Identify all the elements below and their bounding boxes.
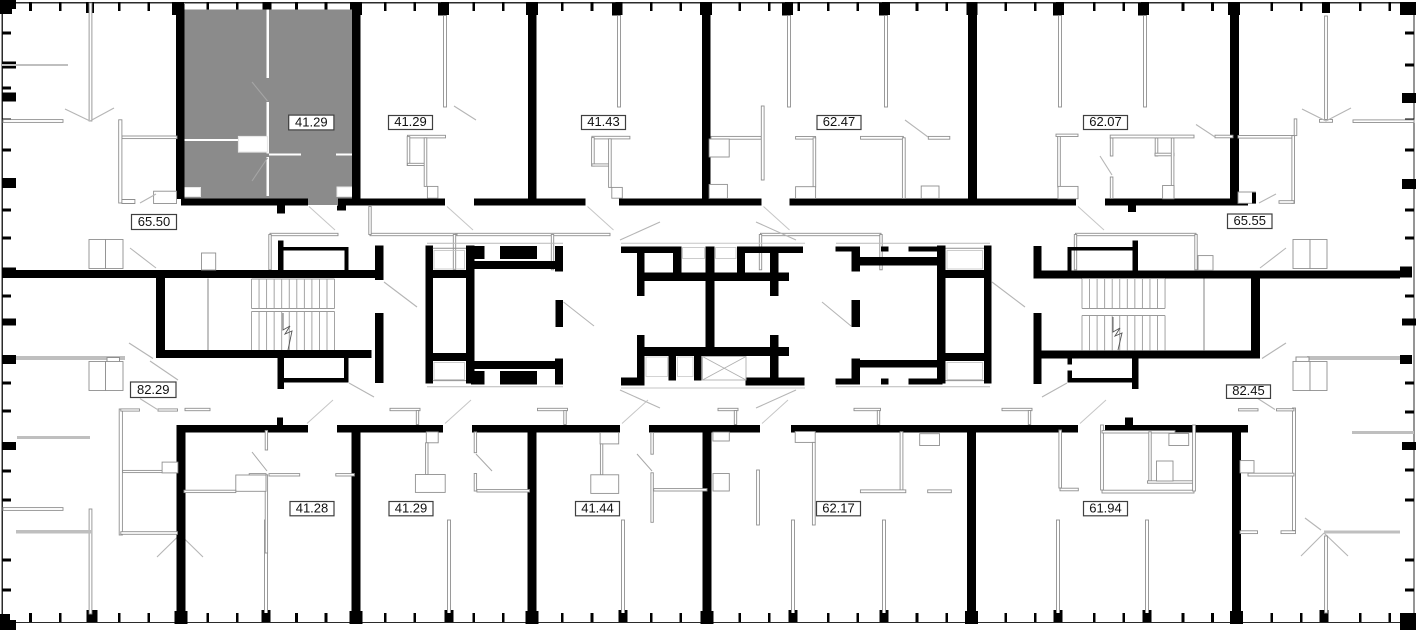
svg-text:41.44: 41.44 bbox=[581, 500, 614, 515]
svg-text:82.45: 82.45 bbox=[1232, 383, 1265, 398]
svg-text:62.17: 62.17 bbox=[822, 500, 855, 515]
svg-text:41.43: 41.43 bbox=[587, 114, 620, 129]
svg-text:41.29: 41.29 bbox=[394, 114, 427, 129]
svg-text:61.94: 61.94 bbox=[1089, 500, 1122, 515]
svg-text:65.55: 65.55 bbox=[1233, 213, 1266, 228]
svg-text:41.28: 41.28 bbox=[296, 500, 329, 515]
svg-text:62.47: 62.47 bbox=[823, 114, 856, 129]
svg-text:41.29: 41.29 bbox=[395, 500, 428, 515]
svg-text:65.50: 65.50 bbox=[138, 214, 171, 229]
svg-text:41.29: 41.29 bbox=[295, 115, 328, 130]
svg-text:62.07: 62.07 bbox=[1089, 114, 1122, 129]
svg-text:82.29: 82.29 bbox=[137, 382, 170, 397]
